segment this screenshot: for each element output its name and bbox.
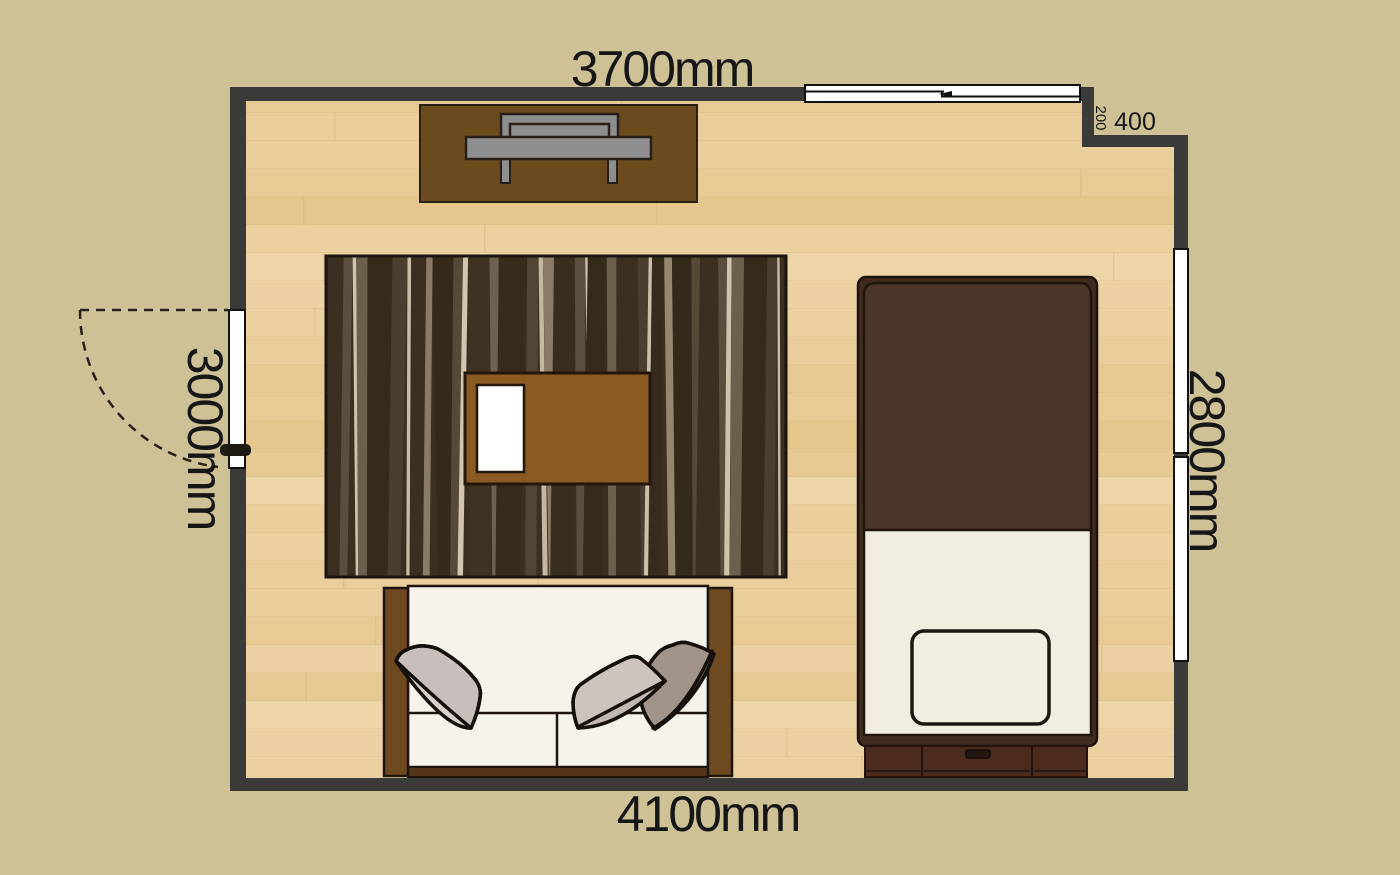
svg-text:200: 200 <box>1092 105 1109 130</box>
svg-text:4100mm: 4100mm <box>617 786 800 842</box>
svg-text:400: 400 <box>1114 108 1156 136</box>
svg-text:2800mm: 2800mm <box>1179 369 1235 552</box>
svg-text:3700mm: 3700mm <box>571 41 754 97</box>
svg-text:3000mm: 3000mm <box>177 347 233 530</box>
